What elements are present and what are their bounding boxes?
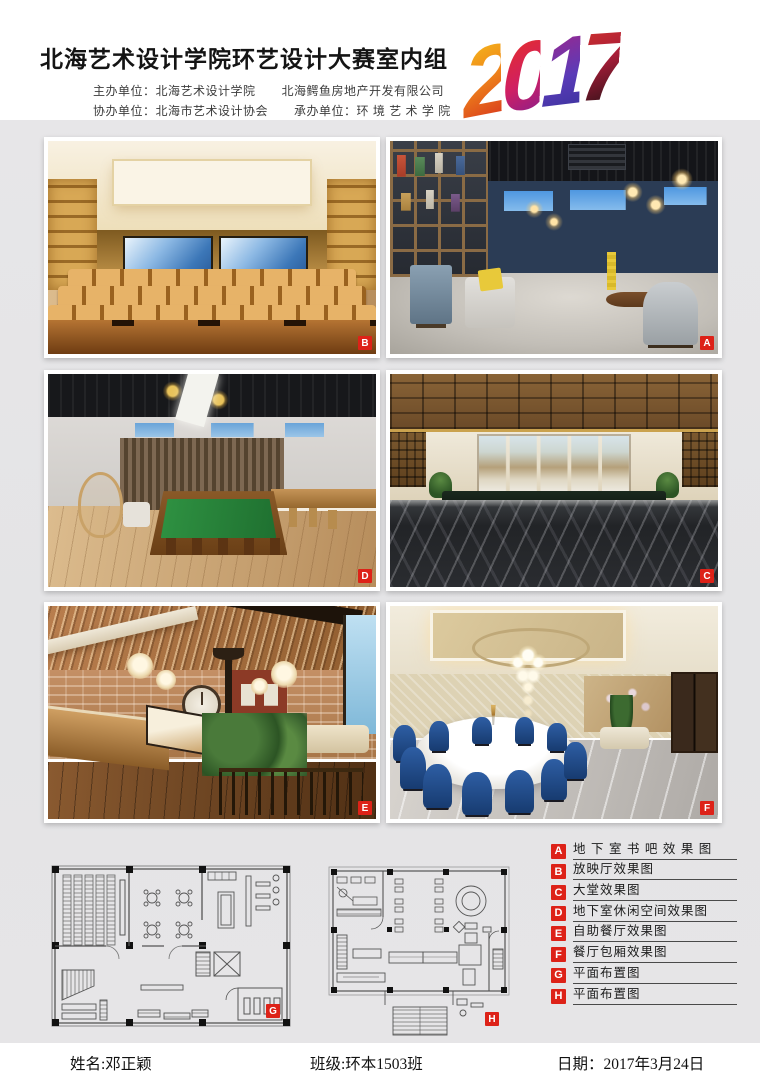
legend-label: 地下室休闲空间效果图: [573, 900, 737, 922]
blue-dining-chair: [505, 770, 535, 813]
bar-stool: [289, 508, 297, 527]
blue-dining-chair: [547, 723, 567, 751]
blue-dining-chair: [429, 721, 449, 751]
render-photo-lobby: C: [386, 370, 722, 591]
poster-date: 日期：2017年3月24日: [557, 1052, 704, 1074]
student-name: 姓名:邓正颖: [70, 1052, 152, 1074]
legend-label: 餐厅包厢效果图: [573, 941, 737, 963]
seat-row-back: [68, 269, 357, 286]
plan-tag-h: H: [485, 1012, 499, 1026]
year-digit-2: 2: [462, 17, 503, 146]
wood-cabinet-left: [390, 432, 426, 487]
dark-double-doors: [671, 672, 718, 753]
legend-list: A地 下 室 书 吧 效 果 图 B放映厅效果图 C大堂效果图 D地下室休闲空间…: [551, 839, 737, 1005]
year-digit-7: 7: [576, 6, 624, 130]
blue-dining-chair: [515, 717, 535, 745]
legend-item: H平面布置图: [551, 984, 737, 1005]
legend-item: C大堂效果图: [551, 880, 737, 901]
plan-tag-g: G: [266, 1004, 280, 1018]
floor-plan-g: G: [46, 860, 296, 1032]
legend-item: B放映厅效果图: [551, 860, 737, 881]
photo-tag-f: F: [700, 801, 714, 815]
blue-dining-chair: [423, 764, 453, 809]
legend-label: 自助餐厅效果图: [573, 920, 737, 942]
organizer-value: 北海艺术设计学院: [156, 84, 256, 98]
render-photo-book-bar: A: [386, 137, 722, 358]
render-photo-dining-room: F: [386, 602, 722, 823]
undertaker-value: 环 境 艺 术 学 院: [357, 104, 451, 118]
blue-dining-chair: [472, 717, 492, 745]
bar-stool: [309, 508, 317, 527]
organizer-label: 主办单位：: [93, 84, 156, 98]
yellow-ladder: [607, 252, 617, 290]
floor-plan-g-drawing: [46, 860, 296, 1032]
bubble-chandelier: [492, 627, 564, 721]
billiards-room-scene: [48, 374, 376, 587]
shell-chair: [643, 282, 699, 346]
legend-label: 地 下 室 书 吧 效 果 图: [573, 838, 737, 860]
side-sofa: [600, 727, 649, 748]
competition-poster: 北海艺术设计学院环艺设计大赛室内组 主办单位：北海艺术设计学院北海鳄鱼房地产开发…: [0, 0, 760, 1085]
bar-stool: [328, 510, 336, 529]
photo-tag-e: E: [358, 801, 372, 815]
front-desk: [48, 320, 376, 354]
lobby-scene: [390, 374, 718, 587]
buffet-restaurant-scene: [48, 606, 376, 819]
photo-tag-a: A: [700, 336, 714, 350]
dining-room-scene: [390, 606, 718, 819]
legend-item: G平面布置图: [551, 963, 737, 984]
pendant-lamp: [271, 661, 297, 687]
blue-armchair: [410, 265, 453, 325]
legend-tag-h: H: [551, 989, 566, 1004]
legend-tag-e: E: [551, 926, 566, 941]
pendant-lamp: [156, 670, 176, 690]
render-photo-billiards-room: D: [44, 370, 380, 591]
legend-item: D地下室休闲空间效果图: [551, 901, 737, 922]
undertaker-label: 承办单位：: [294, 102, 357, 119]
developer-value: 北海鳄鱼房地产开发有限公司: [282, 82, 445, 99]
sloped-wood-ceiling: [48, 606, 376, 670]
legend-label: 大堂效果图: [573, 879, 737, 901]
bar-counter: [271, 489, 376, 508]
window: [343, 615, 376, 734]
legend-label: 平面布置图: [573, 983, 737, 1005]
dark-ceiling-light-strip: [48, 374, 376, 417]
render-photo-buffet-restaurant: E: [44, 602, 380, 823]
legend-item: A地 下 室 书 吧 效 果 图: [551, 839, 737, 860]
iron-railing: [219, 768, 363, 815]
legend-tag-b: B: [551, 864, 566, 879]
pendant-lamp: [127, 653, 153, 679]
year-digit-1: 1: [540, 9, 581, 135]
blue-dining-chair: [564, 742, 587, 778]
co-organizer-label: 协办单位：: [93, 104, 156, 118]
photo-tag-d: D: [358, 569, 372, 583]
photo-tag-c: C: [700, 569, 714, 583]
planter-greenery: [202, 713, 307, 777]
floor-plan-h: H: [323, 857, 515, 1043]
legend-label: 放映厅效果图: [573, 858, 737, 880]
legend-item: F餐厅包厢效果图: [551, 942, 737, 963]
book-bar-scene: [390, 141, 718, 354]
yellow-pillow: [477, 267, 503, 291]
legend-tag-a: A: [551, 844, 566, 859]
poster-title: 北海艺术设计学院环艺设计大赛室内组: [40, 40, 448, 74]
legend-label: 平面布置图: [573, 962, 737, 984]
photo-tag-b: B: [358, 336, 372, 350]
render-photo-screening-room: B: [44, 137, 380, 358]
legend-item: E自助餐厅效果图: [551, 922, 737, 943]
co-organizer-value: 北海市艺术设计协会: [156, 104, 269, 118]
seat-row-middle: [58, 286, 366, 305]
organizer-line: 主办单位：北海艺术设计学院北海鳄鱼房地产开发有限公司: [93, 82, 444, 99]
footer-info-bar: 姓名:邓正颖 班级:环本1503班 日期：2017年3月24日: [0, 1043, 760, 1085]
legend-tag-f: F: [551, 947, 566, 962]
coffered-wood-ceiling: [390, 374, 718, 432]
billiard-table: [150, 491, 288, 555]
co-organizer-line: 协办单位：北海市艺术设计协会承办单位：环 境 艺 术 学 院: [93, 102, 451, 119]
landscape-painting-panels: [479, 436, 630, 494]
blue-dining-chair: [462, 772, 492, 815]
hanging-egg-chair: [78, 472, 123, 538]
screening-room-scene: [48, 141, 376, 354]
legend-tag-c: C: [551, 885, 566, 900]
legend-tag-g: G: [551, 968, 566, 983]
legend-tag-d: D: [551, 906, 566, 921]
year-digit-0: 0: [501, 14, 542, 140]
wood-cabinet-right: [682, 432, 718, 487]
student-class: 班级:环本1503班: [310, 1052, 423, 1074]
lounge-chair: [123, 502, 149, 528]
dark-marble-floor: [390, 500, 718, 587]
pendant-lamp: [251, 678, 267, 694]
